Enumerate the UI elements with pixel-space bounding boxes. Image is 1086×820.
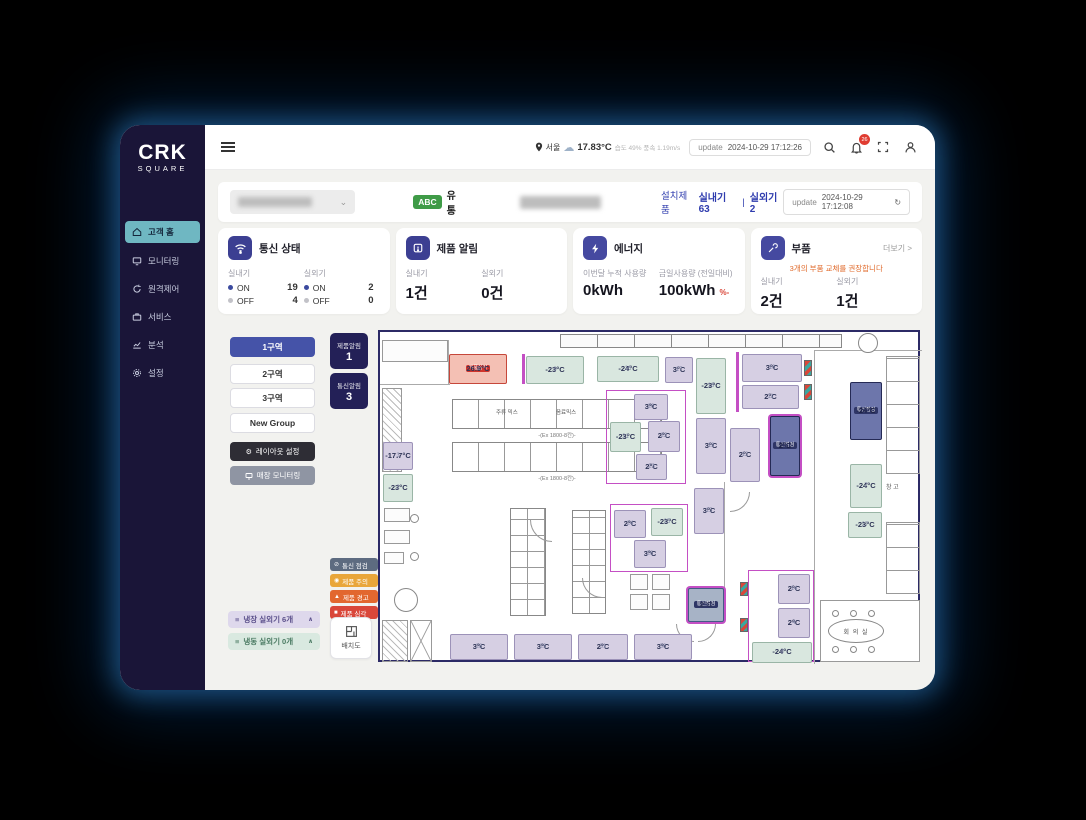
unit-number: 20 bbox=[648, 404, 655, 411]
comm-outdoor-col: 실외기 ON2 OFF0 bbox=[304, 268, 380, 306]
weather-detail: 습도 49% 풍속 1.19m/s bbox=[615, 142, 680, 152]
on-label: ON bbox=[313, 283, 326, 293]
topbar: 서울 ☁ 17.83°C 습도 49% 풍속 1.19m/s update 20… bbox=[205, 125, 935, 170]
indoor-on-count: 19 bbox=[287, 282, 304, 293]
unit-number: 5 bbox=[704, 602, 707, 609]
on-dot bbox=[228, 285, 233, 290]
comm-alert-label: 통신알림 bbox=[337, 380, 361, 390]
on-dot bbox=[304, 285, 309, 290]
outdoor-off-row: OFF0 bbox=[304, 295, 380, 306]
product-alert-label: 제품알림 bbox=[337, 340, 361, 350]
unit-number: 13 bbox=[782, 443, 789, 450]
logo-text-square: SQUARE bbox=[120, 164, 205, 173]
fp-unit-13[interactable]: 통신점검2°C13 bbox=[770, 416, 800, 476]
floorplan-map-label: 배치도 bbox=[341, 641, 360, 651]
weather-widget: 서울 ☁ 17.83°C 습도 49% 풍속 1.19m/s bbox=[535, 141, 681, 154]
installed-products: 설치제품 실내기 63 | 실외기 2 bbox=[661, 188, 783, 216]
zone-button-2[interactable]: 2구역 bbox=[230, 364, 315, 384]
fp-unit-2[interactable]: -23°C2 bbox=[383, 474, 413, 502]
chevron-up-icon: ∧ bbox=[308, 638, 313, 645]
unit-number: 30 bbox=[660, 644, 667, 651]
outdoor-label: 실외기 bbox=[304, 268, 380, 279]
outdoor-unit-count: 실외기 2 bbox=[750, 189, 784, 215]
wrench-icon bbox=[761, 236, 785, 260]
search-button[interactable] bbox=[820, 138, 838, 156]
caution-icon: ◉ bbox=[334, 577, 339, 584]
fp-unit-19[interactable]: 3°C19 bbox=[696, 418, 726, 474]
critical-icon: ■ bbox=[334, 610, 338, 616]
fp-unit-5[interactable]: 통신점검2°C5 bbox=[688, 588, 724, 622]
new-group-button[interactable]: New Group bbox=[230, 413, 315, 433]
divider: | bbox=[742, 197, 744, 208]
product-alarm-card[interactable]: 제품 알림 실내기 1건 실외기 0건 bbox=[396, 228, 568, 314]
unit-number: 8 bbox=[780, 649, 783, 656]
chevron-up-icon: ∧ bbox=[308, 616, 313, 623]
sidebar: CRK SQUARE 고객 홈 모니터링 원격제어 서비스 분석 bbox=[120, 125, 205, 690]
fp-unit-28[interactable]: 3°C28 bbox=[450, 634, 508, 660]
indoor-parts-count: 2건 bbox=[761, 290, 837, 311]
remote-refresh-icon bbox=[132, 284, 142, 294]
sidebar-menu: 고객 홈 모니터링 원격제어 서비스 분석 설정 bbox=[120, 221, 205, 391]
comm-alert-tile[interactable]: 통신알림 3 bbox=[330, 373, 368, 409]
floorplan-map-button[interactable]: 배치도 bbox=[330, 617, 372, 659]
layout-settings-button[interactable]: ⚙ 레이아웃 설정 bbox=[230, 442, 315, 461]
sidebar-item-service[interactable]: 서비스 bbox=[125, 307, 200, 327]
energy-card[interactable]: 에너지 이번달 누적 사용량 0kWh 금일사용량 (전일대비) 100kWh%… bbox=[573, 228, 745, 314]
unit-number: 22 bbox=[661, 433, 668, 440]
cloud-icon: ☁ bbox=[563, 141, 574, 154]
unit-number: 26 bbox=[647, 551, 654, 558]
unit-number: 27 bbox=[862, 522, 869, 529]
brand-name: 유통 bbox=[447, 187, 462, 217]
floorplan-map[interactable]: 주류 믹스 음료믹스 -(Ex 1800-8칸)- -(Ex 1800-8칸)-… bbox=[378, 330, 920, 662]
gear-icon bbox=[132, 368, 142, 378]
sidebar-item-monitoring[interactable]: 모니터링 bbox=[125, 251, 200, 271]
outdoor-on-count: 2 bbox=[368, 282, 379, 293]
card-title: 제품 알림 bbox=[437, 241, 479, 256]
fp-unit-23[interactable]: 2°C23 bbox=[636, 454, 667, 480]
outdoor-alarm-count: 0건 bbox=[481, 282, 557, 303]
fp-unit-21[interactable]: -23°C21 bbox=[610, 422, 641, 452]
outdoor-label: 실외기 bbox=[836, 276, 912, 287]
unit-number: 7 bbox=[864, 483, 867, 490]
wifi-icon bbox=[228, 236, 252, 260]
sidebar-item-settings[interactable]: 설정 bbox=[125, 363, 200, 383]
monthly-usage-value: 0kWh bbox=[583, 282, 659, 299]
indoor-unit-count: 실내기 63 bbox=[699, 189, 738, 215]
product-alert-count: 1 bbox=[346, 351, 352, 363]
notification-count-badge: 26 bbox=[859, 134, 870, 145]
fp-unit-18[interactable]: -23°C18 bbox=[696, 358, 726, 414]
weather-temperature: 17.83°C bbox=[577, 142, 611, 153]
sidebar-item-customer-home[interactable]: 고객 홈 bbox=[125, 221, 200, 243]
fp-unit-31[interactable]: 2°C31 bbox=[578, 634, 628, 660]
indoor-alarm-count: 1건 bbox=[406, 282, 482, 303]
fp-unit-15[interactable]: 3°C15 bbox=[694, 488, 724, 534]
main-area: 서울 ☁ 17.83°C 습도 49% 풍속 1.19m/s update 20… bbox=[205, 125, 935, 690]
unit-number: 16 bbox=[625, 366, 632, 373]
unit-number: 11 bbox=[767, 394, 773, 401]
fp-unit-4[interactable]: 2°C4 bbox=[778, 608, 810, 638]
off-label: OFF bbox=[237, 296, 254, 306]
fridge-outdoor-label: 냉장 실외기 6개 bbox=[243, 614, 293, 625]
fp-unit-6[interactable]: 통신점검-24°C6 bbox=[850, 382, 882, 440]
app-logo: CRK SQUARE bbox=[120, 143, 205, 173]
unit-number: 9 bbox=[553, 367, 556, 374]
legend-product-caution[interactable]: ◉ 제품 주의 bbox=[330, 574, 378, 587]
fp-unit-8[interactable]: -24°C8 bbox=[752, 642, 812, 663]
off-dot bbox=[304, 298, 309, 303]
parts-card[interactable]: 부품 더보기 > 3개의 부품 교체를 권장합니다 실내기 2건 실외기 1건 bbox=[751, 228, 923, 314]
comm-alert-count: 3 bbox=[346, 391, 352, 403]
unit-number: 2 bbox=[396, 485, 399, 492]
search-icon bbox=[823, 141, 836, 154]
unit-number: 25 bbox=[664, 519, 671, 526]
unit-number: 1 bbox=[476, 366, 479, 373]
freezer-outdoor-label: 냉동 실외기 0개 bbox=[243, 636, 293, 647]
sidebar-item-remote-control[interactable]: 원격제어 bbox=[125, 279, 200, 299]
update-label: update bbox=[792, 198, 816, 207]
brand-badge: ABC bbox=[413, 195, 441, 209]
sidebar-item-analysis[interactable]: 분석 bbox=[125, 335, 200, 355]
fp-unit-3[interactable]: -17.7°C3 bbox=[383, 442, 413, 470]
redacted-store-name bbox=[520, 196, 601, 209]
unit-number: 28 bbox=[476, 644, 483, 651]
outdoor-parts-count: 1건 bbox=[836, 290, 912, 311]
unit-number: 14 bbox=[791, 586, 798, 593]
parts-more-link[interactable]: 더보기 > bbox=[883, 243, 912, 254]
sidebar-item-label: 원격제어 bbox=[148, 283, 179, 295]
unit-number: 18 bbox=[708, 383, 715, 390]
floorplan-icon bbox=[345, 625, 358, 638]
header-update-box[interactable]: update 2024-10-29 17:12:08 ↻ bbox=[783, 189, 910, 215]
unit-number: 19 bbox=[708, 443, 715, 450]
on-label: ON bbox=[237, 283, 250, 293]
fp-units-layer: 제품심각26.9°C1-23°C9-24°C163°C17-23°C183°C1… bbox=[380, 332, 918, 660]
refresh-icon: ↻ bbox=[894, 198, 901, 207]
store-monitoring-button[interactable]: 매장 모니터링 bbox=[230, 466, 315, 485]
fp-unit-25[interactable]: -23°C25 bbox=[651, 508, 683, 536]
indoor-on-row: ON19 bbox=[228, 282, 304, 293]
unit-number: 3 bbox=[396, 453, 399, 460]
fp-unit-7[interactable]: -24°C7 bbox=[850, 464, 882, 508]
fp-unit-29[interactable]: 3°C29 bbox=[514, 634, 572, 660]
fp-unit-30[interactable]: 3°C30 bbox=[634, 634, 692, 660]
monitor-icon bbox=[132, 256, 142, 266]
store-header-strip: ⌄ ABC 유통 설치제품 실내기 63 | 실외기 2 update 2024… bbox=[218, 182, 922, 222]
indoor-off-row: OFF4 bbox=[228, 295, 304, 306]
comm-status-card[interactable]: 통신 상태 실내기 ON19 OFF4 실외기 ON2 OFF0 bbox=[218, 228, 390, 314]
fp-unit-22[interactable]: 2°C22 bbox=[648, 421, 680, 452]
update-label: update bbox=[698, 143, 722, 152]
list-icon: ≡ bbox=[235, 637, 239, 646]
monitor-icon bbox=[245, 472, 253, 480]
indoor-label: 실내기 bbox=[761, 276, 837, 287]
unit-number: 21 bbox=[622, 434, 629, 441]
installed-label: 설치제품 bbox=[661, 188, 694, 216]
alarm-bell-icon bbox=[406, 236, 430, 260]
fp-unit-12[interactable]: 2°C12 bbox=[730, 428, 760, 482]
parts-notice: 3개의 부품 교체를 권장합니다 bbox=[761, 263, 913, 274]
fp-unit-24[interactable]: 2°C24 bbox=[614, 510, 646, 538]
topbar-update-box[interactable]: update 2024-10-29 17:12:26 bbox=[689, 139, 811, 156]
comm-indoor-col: 실내기 ON19 OFF4 bbox=[228, 268, 304, 306]
unit-number: 10 bbox=[769, 365, 776, 372]
fp-unit-11[interactable]: 2°C11 bbox=[742, 385, 799, 409]
sidebar-item-label: 분석 bbox=[148, 339, 164, 351]
daily-usage-value: 100kWh%- bbox=[659, 282, 735, 299]
topbar-right: 서울 ☁ 17.83°C 습도 49% 풍속 1.19m/s update 20… bbox=[535, 138, 919, 156]
unit-number: 24 bbox=[627, 521, 634, 528]
zone-button-1[interactable]: 1구역 bbox=[230, 337, 315, 357]
chart-icon bbox=[132, 340, 142, 350]
legend-comm-check[interactable]: ⊘ 통신 점검 bbox=[330, 558, 378, 571]
legend-label: 제품 주의 bbox=[342, 576, 368, 586]
fp-unit-14[interactable]: 2°C14 bbox=[778, 574, 810, 604]
layout-settings-label: 레이아웃 설정 bbox=[256, 446, 299, 457]
brand-area: ABC 유통 bbox=[413, 187, 462, 217]
sidebar-item-label: 모니터링 bbox=[148, 255, 179, 267]
outdoor-label: 실외기 bbox=[481, 268, 557, 279]
fridge-outdoor-accordion[interactable]: ≡ 냉장 실외기 6개 ∧ bbox=[228, 611, 320, 628]
page-background: { "topbar": { "location": "서울", "tempera… bbox=[0, 0, 1086, 820]
chevron-down-icon: ⌄ bbox=[340, 197, 348, 208]
outdoor-off-count: 0 bbox=[368, 295, 379, 306]
bolt-icon bbox=[583, 236, 607, 260]
weather-location: 서울 bbox=[546, 142, 561, 153]
briefcase-icon bbox=[132, 312, 142, 322]
indoor-off-count: 4 bbox=[292, 295, 303, 306]
gear-icon: ⚙ bbox=[246, 448, 252, 456]
monthly-usage-label: 이번달 누적 사용량 bbox=[583, 268, 659, 279]
user-icon bbox=[904, 141, 917, 154]
fp-unit-20[interactable]: 3°C20 bbox=[634, 394, 668, 420]
unit-number: 12 bbox=[742, 452, 749, 459]
fullscreen-icon bbox=[877, 141, 889, 153]
unit-number: 6 bbox=[864, 408, 867, 415]
indoor-label: 실내기 bbox=[406, 268, 482, 279]
sidebar-item-label: 설정 bbox=[148, 367, 164, 379]
card-title: 에너지 bbox=[614, 241, 643, 256]
fullscreen-button[interactable] bbox=[874, 138, 892, 156]
outdoor-on-row: ON2 bbox=[304, 282, 380, 293]
legend-product-warning[interactable]: ▲ 제품 경고 bbox=[330, 590, 378, 603]
status-cards-row: 통신 상태 실내기 ON19 OFF4 실외기 ON2 OFF0 bbox=[218, 228, 922, 314]
comm-check-icon: ⊘ bbox=[334, 561, 339, 568]
freezer-outdoor-accordion[interactable]: ≡ 냉동 실외기 0개 ∧ bbox=[228, 633, 320, 650]
indoor-label: 실내기 bbox=[228, 268, 304, 279]
fp-unit-16[interactable]: -24°C16 bbox=[597, 356, 659, 382]
sidebar-item-label: 서비스 bbox=[148, 311, 171, 323]
daily-delta: %- bbox=[719, 288, 729, 297]
legend-label: 제품 심각 bbox=[341, 608, 367, 618]
app-window: CRK SQUARE 고객 홈 모니터링 원격제어 서비스 분석 bbox=[120, 125, 935, 690]
fp-unit-27[interactable]: -23°C27 bbox=[848, 512, 882, 538]
profile-button[interactable] bbox=[901, 138, 919, 156]
unit-number: 31 bbox=[600, 644, 607, 651]
warning-icon: ▲ bbox=[334, 594, 340, 600]
unit-number: 23 bbox=[648, 464, 655, 471]
legend-label: 제품 경고 bbox=[343, 592, 369, 602]
location-pin-icon bbox=[535, 142, 543, 152]
unit-number: 17 bbox=[676, 367, 683, 374]
home-icon bbox=[132, 227, 142, 237]
fp-unit-1[interactable]: 제품심각26.9°C1 bbox=[449, 354, 507, 384]
notifications-button[interactable]: 26 bbox=[847, 138, 865, 156]
off-label: OFF bbox=[313, 296, 330, 306]
fp-unit-26[interactable]: 3°C26 bbox=[634, 540, 666, 568]
logo-text-crk: CRK bbox=[120, 143, 205, 163]
store-monitoring-label: 매장 모니터링 bbox=[257, 470, 300, 481]
legend-label: 통신 점검 bbox=[342, 560, 368, 570]
unit-number: 29 bbox=[540, 644, 547, 651]
zone-button-3[interactable]: 3구역 bbox=[230, 388, 315, 408]
list-icon: ≡ bbox=[235, 615, 239, 624]
store-selector-dropdown[interactable]: ⌄ bbox=[230, 190, 355, 214]
card-title: 통신 상태 bbox=[259, 241, 301, 256]
update-timestamp: 2024-10-29 17:12:26 bbox=[728, 143, 802, 152]
unit-number: 4 bbox=[792, 620, 795, 627]
hamburger-menu-icon[interactable] bbox=[221, 139, 235, 154]
daily-usage-label: 금일사용량 (전일대비) bbox=[659, 268, 735, 279]
update-timestamp: 2024-10-29 17:12:08 bbox=[822, 193, 890, 211]
sidebar-item-label: 고객 홈 bbox=[148, 226, 174, 238]
fp-unit-10[interactable]: 3°C10 bbox=[742, 354, 802, 382]
fp-unit-9[interactable]: -23°C9 bbox=[526, 356, 584, 384]
off-dot bbox=[228, 298, 233, 303]
card-title: 부품 bbox=[792, 241, 811, 256]
product-alert-tile[interactable]: 제품알림 1 bbox=[330, 333, 368, 369]
unit-number: 15 bbox=[706, 508, 713, 515]
redacted-store-selector-text bbox=[238, 197, 312, 207]
fp-unit-17[interactable]: 3°C17 bbox=[665, 357, 693, 383]
